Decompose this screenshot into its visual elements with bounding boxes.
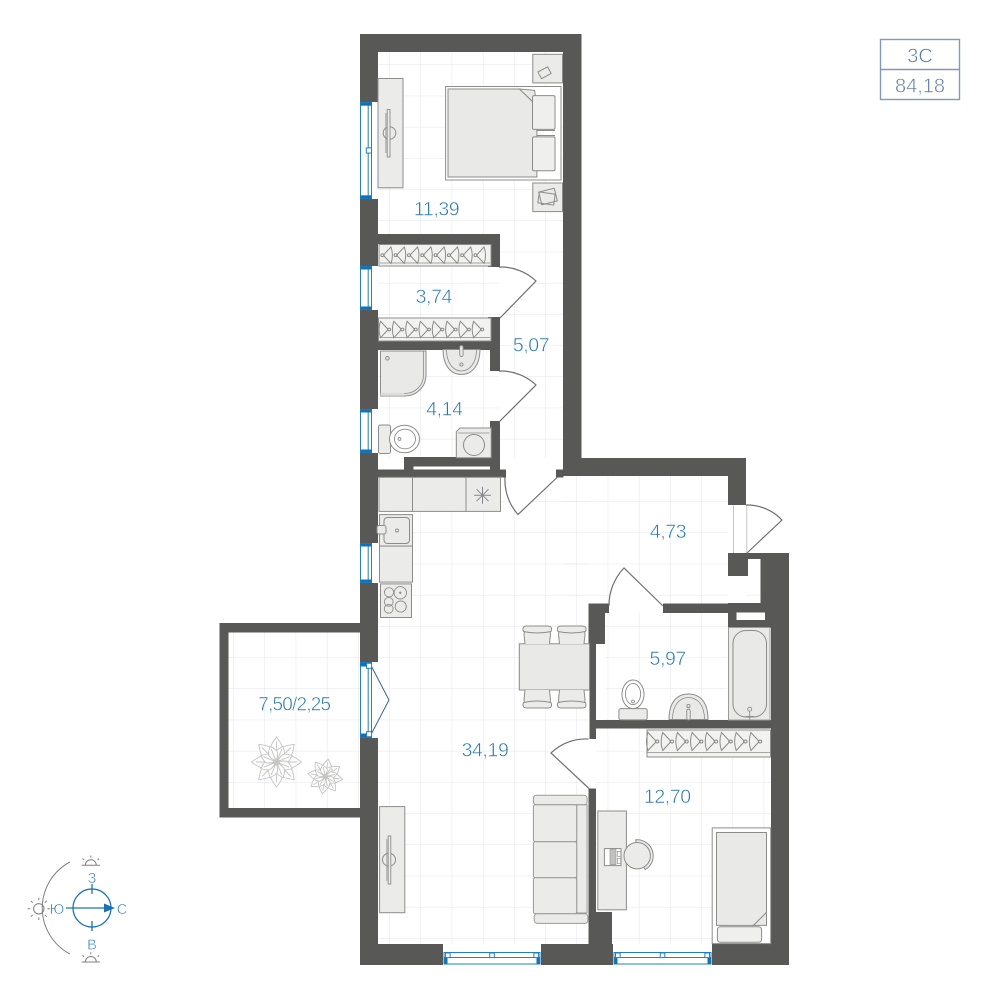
svg-text:11,39: 11,39 — [414, 199, 459, 221]
svg-text:5,07: 5,07 — [513, 335, 549, 357]
svg-text:84,18: 84,18 — [895, 76, 945, 98]
svg-text:4,14: 4,14 — [426, 399, 463, 421]
svg-text:З: З — [88, 871, 97, 887]
svg-text:3,74: 3,74 — [416, 286, 453, 308]
svg-text:В: В — [87, 938, 97, 954]
svg-text:3С: 3С — [907, 46, 933, 68]
svg-text:4,73: 4,73 — [650, 521, 686, 543]
svg-text:5,97: 5,97 — [650, 648, 686, 670]
svg-text:7,50/2,25: 7,50/2,25 — [258, 695, 330, 716]
svg-text:Ю: Ю — [50, 902, 65, 918]
svg-text:34,19: 34,19 — [462, 740, 509, 762]
svg-text:12,70: 12,70 — [644, 786, 691, 808]
svg-text:С: С — [117, 902, 127, 918]
